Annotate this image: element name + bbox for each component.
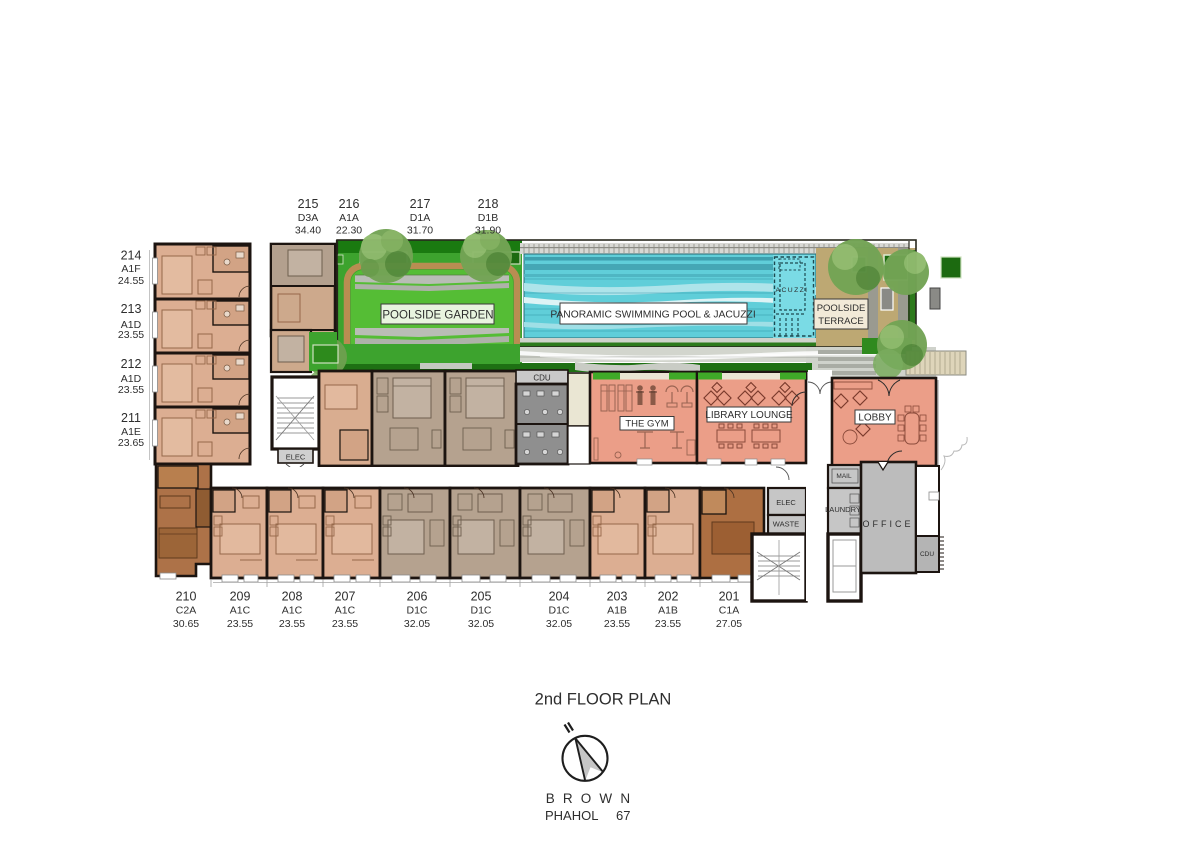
svg-text:23.55: 23.55 (604, 618, 630, 630)
svg-text:A1C: A1C (230, 605, 251, 617)
svg-text:B R O W N: B R O W N (546, 791, 633, 806)
svg-text:209: 209 (230, 590, 251, 604)
svg-text:217: 217 (410, 197, 431, 211)
svg-text:A1B: A1B (658, 605, 678, 617)
svg-text:POOLSIDE: POOLSIDE (817, 303, 866, 314)
svg-text:A1F: A1F (121, 263, 140, 275)
svg-text:D3A: D3A (298, 212, 318, 224)
svg-text:213: 213 (121, 302, 142, 316)
svg-text:214: 214 (121, 249, 142, 263)
svg-text:23.65: 23.65 (118, 437, 144, 449)
svg-text:LIBRARY LOUNGE: LIBRARY LOUNGE (705, 410, 793, 421)
svg-text:A1A: A1A (339, 212, 359, 224)
svg-text:POOLSIDE GARDEN: POOLSIDE GARDEN (382, 310, 493, 322)
svg-text:207: 207 (335, 590, 356, 604)
svg-text:WASTE: WASTE (773, 520, 799, 529)
svg-text:202: 202 (658, 590, 679, 604)
svg-text:CDU: CDU (533, 374, 551, 383)
svg-text:A1B: A1B (607, 605, 627, 617)
svg-text:23.55: 23.55 (332, 618, 358, 630)
svg-text:LAUNDRY: LAUNDRY (825, 505, 861, 514)
svg-text:LOBBY: LOBBY (858, 413, 892, 424)
svg-text:A1C: A1C (335, 605, 356, 617)
svg-text:205: 205 (471, 590, 492, 604)
svg-text:A1C: A1C (282, 605, 303, 617)
svg-text:210: 210 (176, 590, 197, 604)
svg-text:ELEC: ELEC (286, 453, 306, 462)
svg-text:201: 201 (719, 590, 740, 604)
svg-text:23.55: 23.55 (227, 618, 253, 630)
svg-text:23.55: 23.55 (279, 618, 305, 630)
svg-text:23.55: 23.55 (118, 329, 144, 341)
svg-text:30.65: 30.65 (173, 618, 199, 630)
svg-text:34.40: 34.40 (295, 225, 321, 237)
svg-text:D1A: D1A (410, 212, 430, 224)
svg-text:32.05: 32.05 (404, 618, 430, 630)
svg-text:31.70: 31.70 (407, 225, 433, 237)
svg-text:211: 211 (121, 411, 141, 425)
svg-text:23.55: 23.55 (655, 618, 681, 630)
svg-text:67: 67 (616, 808, 630, 823)
svg-text:208: 208 (282, 590, 303, 604)
svg-text:206: 206 (407, 590, 428, 604)
svg-text:MAIL: MAIL (836, 473, 852, 480)
svg-text:32.05: 32.05 (546, 618, 572, 630)
svg-text:THE GYM: THE GYM (625, 419, 668, 430)
svg-text:31.90: 31.90 (475, 225, 501, 237)
svg-text:D1C: D1C (406, 605, 427, 617)
svg-text:PHAHOL: PHAHOL (545, 808, 598, 823)
svg-text:ACUZZI: ACUZZI (776, 287, 809, 294)
svg-text:22.30: 22.30 (336, 225, 362, 237)
svg-text:TERRACE: TERRACE (818, 316, 863, 327)
svg-text:204: 204 (549, 590, 570, 604)
svg-text:215: 215 (298, 197, 319, 211)
svg-text:D1C: D1C (470, 605, 491, 617)
svg-text:ELEC: ELEC (776, 498, 796, 507)
svg-text:216: 216 (339, 197, 360, 211)
svg-text:2nd FLOOR PLAN: 2nd FLOOR PLAN (535, 691, 672, 709)
svg-text:203: 203 (607, 590, 628, 604)
svg-text:212: 212 (121, 357, 142, 371)
svg-text:D1C: D1C (548, 605, 569, 617)
svg-text:24.55: 24.55 (118, 275, 144, 287)
svg-text:CDU: CDU (920, 551, 934, 558)
svg-text:218: 218 (478, 197, 499, 211)
svg-text:OFFICE: OFFICE (863, 519, 914, 529)
svg-text:C1A: C1A (719, 605, 739, 617)
svg-text:PANORAMIC SWIMMING POOL & JACU: PANORAMIC SWIMMING POOL & JACUZZI (550, 310, 755, 321)
svg-text:C2A: C2A (176, 605, 196, 617)
svg-text:23.55: 23.55 (118, 384, 144, 396)
svg-text:32.05: 32.05 (468, 618, 494, 630)
svg-text:D1B: D1B (478, 212, 498, 224)
svg-text:27.05: 27.05 (716, 618, 742, 630)
